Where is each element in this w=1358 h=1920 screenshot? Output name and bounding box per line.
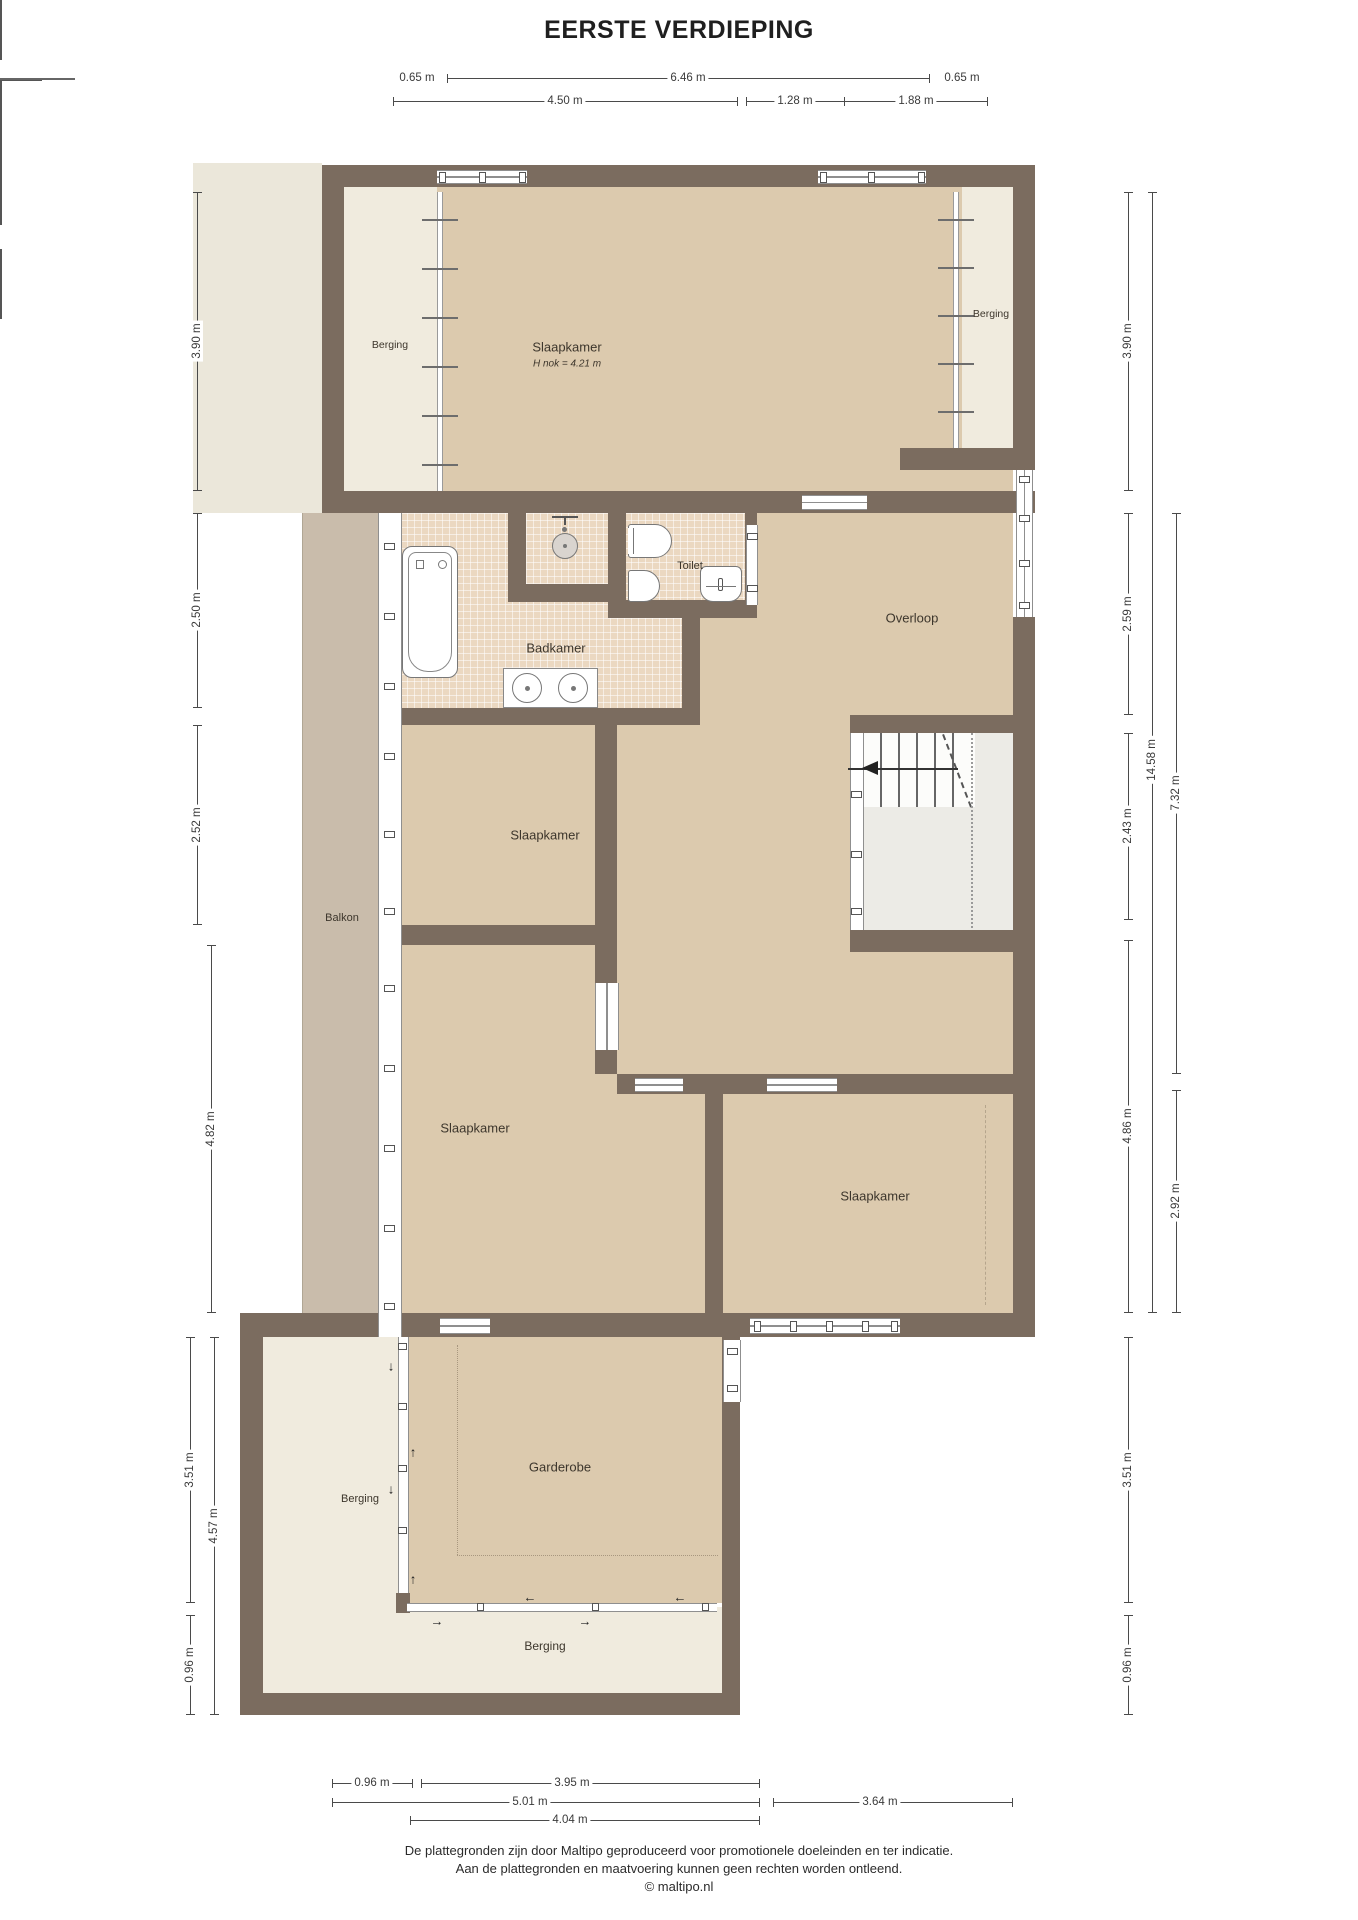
dim-top-1_28: 1.28 m (774, 95, 815, 107)
dim-right-0_96: 0.96 m (1122, 1644, 1134, 1685)
wall-between-bedrooms (705, 1074, 723, 1313)
dim-right-3_90: 3.90 m (1122, 320, 1134, 361)
stair-tread (898, 733, 900, 807)
wall-toilet-west (608, 513, 626, 618)
wall-bottom-west (240, 1313, 263, 1715)
wall-east-attic (1013, 187, 1035, 470)
dim-tick (193, 725, 202, 726)
dim-top-0_65-left: 0.65 m (396, 72, 437, 84)
dim-tick (1124, 733, 1133, 734)
room-berging-bottom (263, 1607, 722, 1693)
vanity-sink-left-drain (525, 686, 530, 691)
dim-tick (210, 1337, 219, 1338)
dim-tick (207, 1312, 216, 1313)
garderobe-dotted-h (457, 1555, 718, 1556)
bathtub-tap (416, 560, 424, 569)
dim-tick (193, 490, 202, 491)
dim-tick (1148, 192, 1157, 193)
window-toilet (746, 525, 758, 605)
room-balkon (302, 513, 379, 1337)
dim-tick (186, 1602, 195, 1603)
wall-south-band (240, 1313, 1035, 1337)
slope-arrow-right-icon: → (579, 1614, 592, 1629)
door-slaapkamer-right-tick (0, 81, 2, 125)
door-garderobe (0, 225, 64, 249)
wall-east-lower (1013, 733, 1035, 1074)
dim-tick (987, 97, 988, 106)
room-slaapkamer-attic (344, 187, 1013, 491)
knee-wall-right (953, 192, 959, 448)
dim-tick (193, 924, 202, 925)
door-slaapkamer-big (635, 1078, 683, 1092)
dim-tick (759, 1779, 760, 1788)
hand-sink-tap (718, 578, 723, 591)
knee-wall-left (437, 192, 443, 491)
dim-tick (186, 1714, 195, 1715)
stair-tread (934, 733, 936, 807)
partition-berging-vertical (398, 1337, 409, 1593)
dim-tick (1172, 1312, 1181, 1313)
footer-copyright: © maltipo.nl (0, 1879, 1358, 1894)
shower-head-dot (562, 527, 567, 532)
dim-tick (746, 97, 747, 106)
dim-tick (412, 1779, 413, 1788)
window-top-left (437, 170, 527, 184)
garderobe-dotted-v (457, 1345, 458, 1555)
dim-tick (1124, 1602, 1133, 1603)
label-slaapkamer-attic: Slaapkamer (532, 340, 601, 355)
knee-tick (422, 366, 458, 368)
door-slaapkamer-right (767, 1078, 837, 1092)
wall-east-right-room (1013, 1094, 1035, 1313)
door-toilet (0, 60, 57, 78)
wall-badkamer-south (400, 708, 700, 725)
dim-tick (186, 1615, 195, 1616)
dim-tick (1172, 513, 1181, 514)
knee-tick (422, 415, 458, 417)
toilet-1-tank (628, 528, 634, 554)
wall-stairs-top (850, 715, 1035, 733)
dim-tick (447, 74, 448, 83)
slope-arrow-down-icon: ↓ (388, 1482, 395, 1497)
stair-tread (952, 733, 954, 807)
dim-left-4_57: 4.57 m (208, 1505, 220, 1546)
label-slaapkamer-big: Slaapkamer (440, 1121, 509, 1136)
dim-tick (759, 1816, 760, 1825)
stair-tread (916, 733, 918, 807)
room-slaapkamer-mid (400, 725, 595, 925)
overloop-top-patch (900, 470, 1013, 491)
bathtub (402, 546, 458, 678)
page-title: EERSTE VERDIEPING (0, 16, 1358, 45)
label-balkon: Balkon (325, 912, 359, 924)
dim-right-2_43: 2.43 m (1122, 805, 1134, 846)
slope-arrow-up-icon: ↑ (410, 1445, 417, 1460)
wall-berging-right-bottom (900, 448, 1035, 470)
dim-top-1_88: 1.88 m (895, 95, 936, 107)
dim-tick (1124, 919, 1133, 920)
door-garderobe-tick (0, 249, 2, 319)
stair-dotted-line (971, 733, 973, 928)
room-slaapkamer-right (723, 1094, 1013, 1313)
dim-tick (393, 97, 394, 106)
dim-tick (332, 1779, 333, 1788)
label-berging-attic-left: Berging (372, 339, 408, 351)
toilet-bowl-2 (628, 570, 660, 602)
dim-right-3_51: 3.51 m (1122, 1449, 1134, 1490)
dim-tick (421, 1779, 422, 1788)
dim-top-4_50: 4.50 m (544, 95, 585, 107)
wall-toilet-south (626, 600, 757, 618)
room-berging-bottom-left (263, 1337, 398, 1607)
stair-arrow-icon (862, 761, 878, 775)
footer-disclaimer-line2: Aan de plattegronden en maatvoering kunn… (0, 1861, 1358, 1876)
window-slaapkamer-right-south (750, 1318, 900, 1334)
dim-bottom-3_95: 3.95 m (551, 1777, 592, 1789)
label-slaapkamer-right: Slaapkamer (840, 1189, 909, 1204)
slaapkamer-mid-door-tick (0, 80, 42, 82)
wall-stairs-south (850, 930, 1013, 952)
knee-tick (422, 464, 458, 466)
label-slaapkamer-mid: Slaapkamer (510, 828, 579, 843)
dim-tick (186, 1337, 195, 1338)
wall-mid-slaapkamer-south (380, 925, 617, 945)
toilet-bowl-1 (628, 524, 672, 558)
dim-tick (207, 945, 216, 946)
label-toilet: Toilet (677, 560, 703, 572)
knee-tick (938, 411, 974, 413)
dim-top-6_46: 6.46 m (667, 72, 708, 84)
dim-right-7_32: 7.32 m (1170, 772, 1182, 813)
slope-arrow-right-icon: → (431, 1614, 444, 1629)
dim-top-0_65-right: 0.65 m (941, 72, 982, 84)
roof-terrace-area (193, 163, 322, 513)
slope-arrow-down-icon: ↓ (388, 1359, 395, 1374)
dim-bottom-5_01: 5.01 m (509, 1796, 550, 1808)
knee-tick (422, 317, 458, 319)
overloop-west-patch (700, 618, 757, 708)
dim-tick (1148, 1312, 1157, 1313)
window-top-right (818, 170, 926, 184)
dim-tick (1124, 1312, 1133, 1313)
knee-tick (938, 363, 974, 365)
shower-head-stem (564, 516, 566, 525)
slope-arrow-left-icon: ← (674, 1590, 687, 1605)
label-berging-attic-right: Berging (973, 308, 1009, 320)
dim-tick (1124, 513, 1133, 514)
wall-badkamer-east (682, 615, 700, 708)
wall-west-attic (322, 187, 344, 513)
label-slaapkamer-attic-note: H nok = 4.21 m (533, 359, 601, 370)
slope-arrow-up-icon: ↑ (410, 1572, 417, 1587)
dim-tick (1124, 1615, 1133, 1616)
label-overloop: Overloop (886, 611, 939, 626)
window-slaapkamer-mid-door (595, 983, 619, 1050)
dim-tick (1124, 490, 1133, 491)
dim-left-2_52: 2.52 m (191, 804, 203, 845)
dim-tick (737, 97, 738, 106)
bathtub-faucet (438, 560, 447, 569)
dim-tick (1124, 192, 1133, 193)
partition-berging-horizontal (407, 1603, 717, 1612)
slope-arrow-left-icon: ← (524, 1590, 537, 1605)
label-garderobe: Garderobe (529, 1460, 591, 1475)
dim-tick (1124, 714, 1133, 715)
dim-tick (193, 707, 202, 708)
knee-tick (422, 219, 458, 221)
dim-tick (1124, 940, 1133, 941)
dim-right-14_58: 14.58 m (1146, 736, 1158, 784)
dim-tick (1012, 1798, 1013, 1807)
dim-tick (193, 513, 202, 514)
door-overloop (802, 495, 867, 510)
dim-left-2_50: 2.50 m (191, 589, 203, 630)
door-slaapkamer-big-tick (0, 125, 2, 165)
dim-left-3_51: 3.51 m (184, 1449, 196, 1490)
room-slaapkamer-big (400, 1074, 705, 1313)
dim-tick (759, 1798, 760, 1807)
wall-top (322, 165, 1035, 187)
dim-tick (1172, 1090, 1181, 1091)
dim-bottom-3_64: 3.64 m (859, 1796, 900, 1808)
dim-tick (929, 74, 930, 83)
dim-tick (193, 192, 202, 193)
shower-drain-dot (563, 544, 567, 548)
wall-overloop-corner (1013, 617, 1035, 715)
footer-disclaimer-line1: De plattegronden zijn door Maltipo gepro… (0, 1843, 1358, 1858)
knee-tick (938, 219, 974, 221)
dim-right-2_92: 2.92 m (1170, 1180, 1182, 1221)
window-bigroom-south (440, 1318, 490, 1334)
dim-tick (410, 1816, 411, 1825)
vanity-sink-right-drain (571, 686, 576, 691)
window-bottom-east (723, 1340, 741, 1402)
dim-tick (210, 1714, 219, 1715)
dim-left-0_96: 0.96 m (184, 1644, 196, 1685)
knee-tick (938, 267, 974, 269)
wall-bottom-south (240, 1693, 740, 1715)
dim-tick (844, 97, 845, 106)
stair-tread (880, 733, 882, 807)
dim-tick (1124, 1714, 1133, 1715)
label-berging-bottom-left: Berging (341, 1493, 379, 1505)
room-slaapkamer-big-upper (400, 945, 595, 1075)
dim-tick (332, 1798, 333, 1807)
dim-bottom-0_96: 0.96 m (351, 1777, 392, 1789)
window-overloop-east (1016, 470, 1033, 617)
sloped-ceiling-dashed-line (985, 1105, 986, 1305)
label-badkamer: Badkamer (526, 641, 585, 656)
window-bigroom-south-tick (0, 165, 2, 225)
label-berging-bottom: Berging (524, 1639, 565, 1653)
dim-tick (1172, 1073, 1181, 1074)
floorplan-canvas: EERSTE VERDIEPING (0, 0, 1358, 1920)
hand-sink-line (706, 586, 736, 587)
window-balkon-wall (378, 513, 402, 1337)
dim-bottom-4_04: 4.04 m (549, 1814, 590, 1826)
dim-tick (773, 1798, 774, 1807)
dim-left-4_82: 4.82 m (205, 1108, 217, 1149)
dim-right-4_86: 4.86 m (1122, 1105, 1134, 1146)
wall-attic-bottom (322, 491, 1035, 513)
dim-tick (1124, 1337, 1133, 1338)
knee-tick (422, 268, 458, 270)
dim-right-2_59: 2.59 m (1122, 593, 1134, 634)
knee-tick (938, 315, 974, 317)
dim-left-3_90: 3.90 m (191, 320, 203, 361)
